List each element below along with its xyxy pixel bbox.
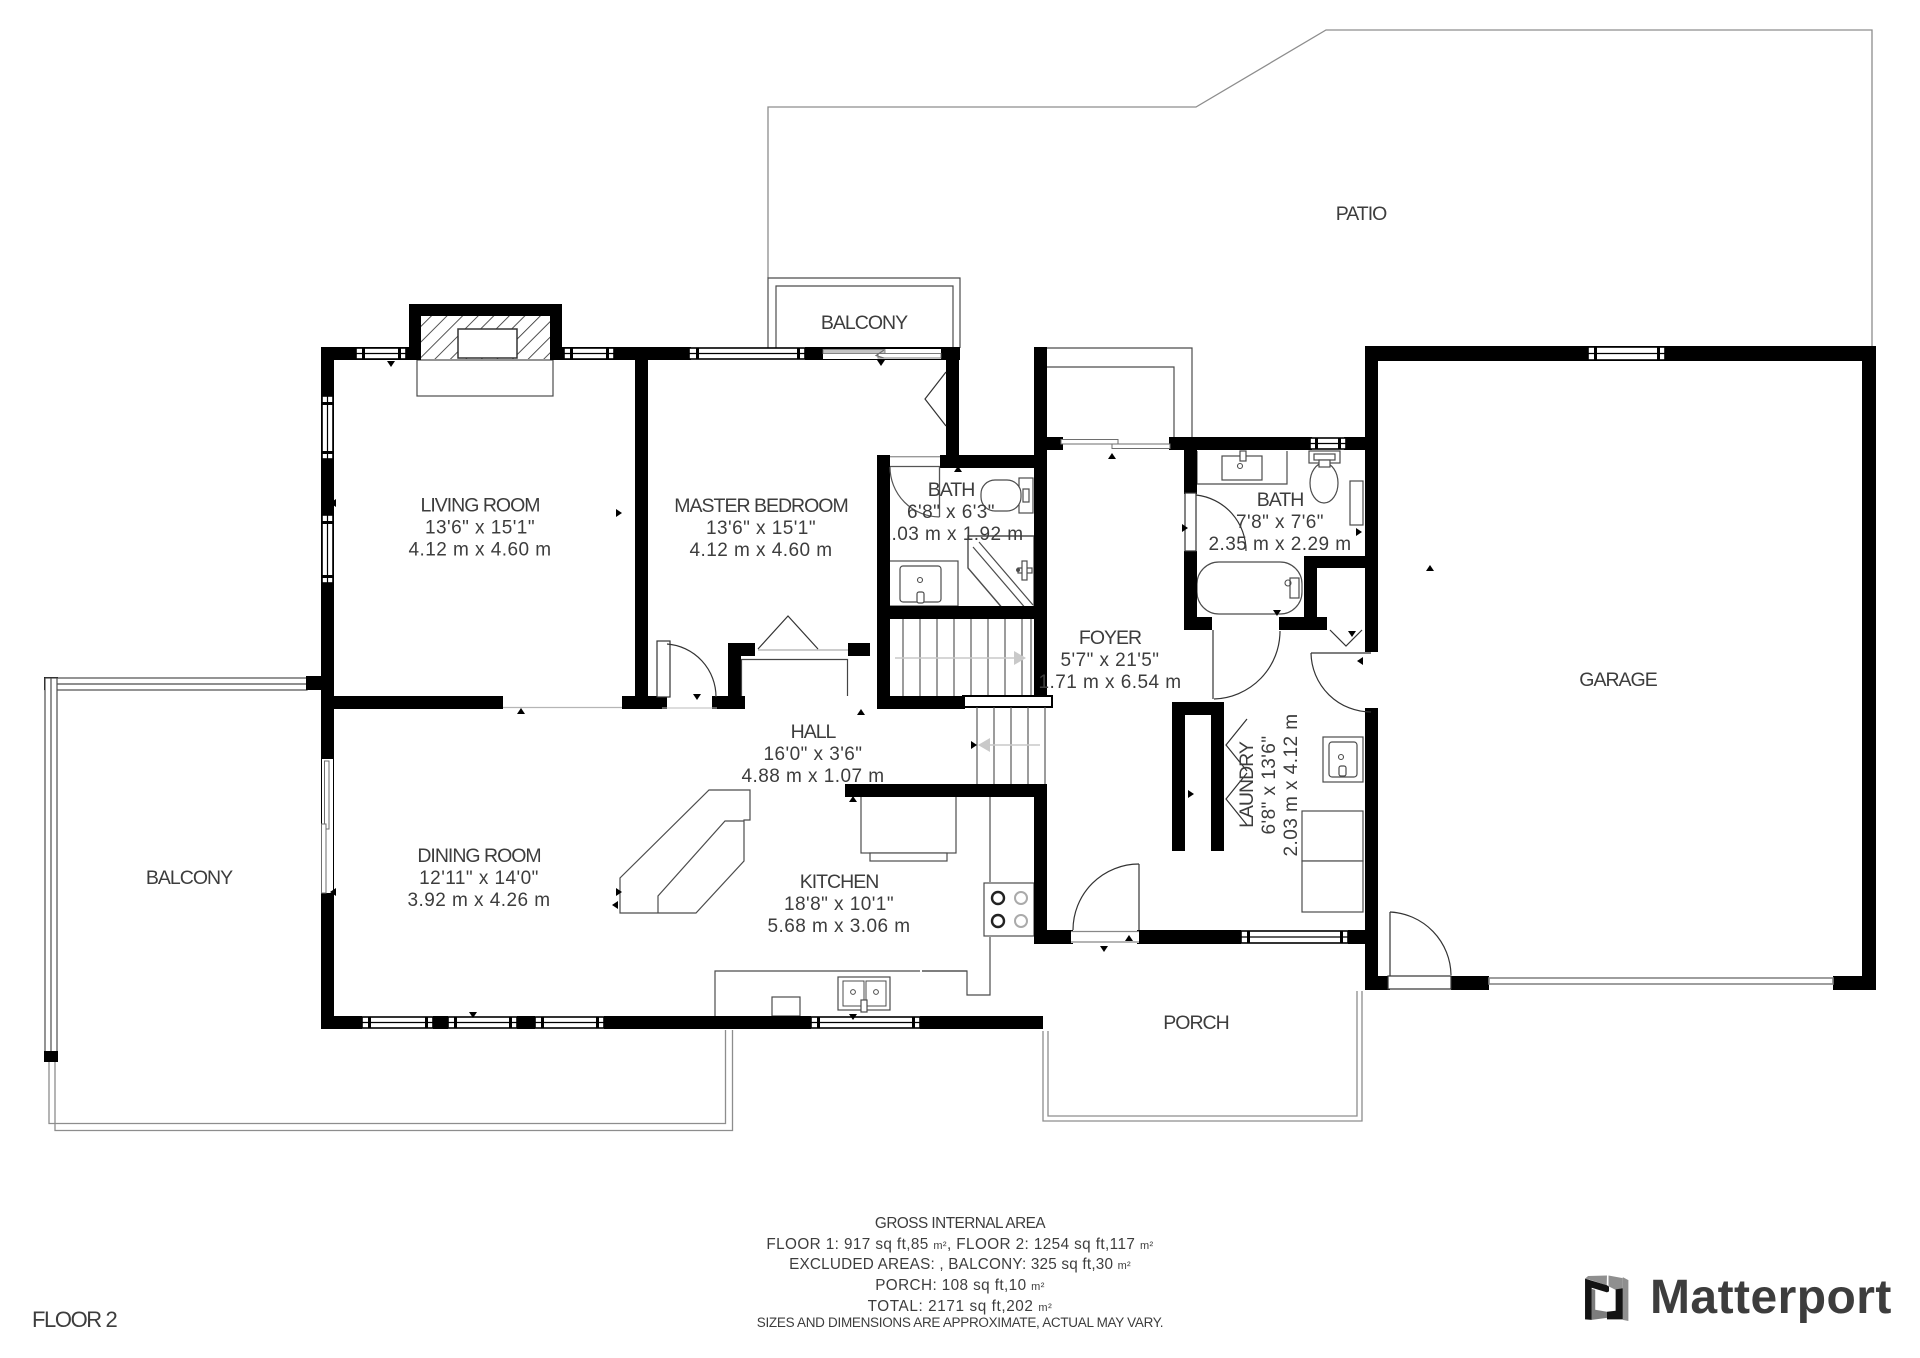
svg-text:SIZES AND DIMENSIONS ARE APPRO: SIZES AND DIMENSIONS ARE APPROXIMATE, AC… (757, 1315, 1163, 1330)
svg-text:2.03 m x 4.12 m: 2.03 m x 4.12 m (1281, 714, 1302, 857)
svg-text:BALCONY: BALCONY (146, 867, 233, 889)
svg-text:LIVING ROOM: LIVING ROOM (420, 495, 539, 517)
svg-text:13'6" x 15'1": 13'6" x 15'1" (425, 518, 535, 539)
svg-text:Matterport: Matterport (1650, 1271, 1892, 1324)
svg-text:5.68 m x 3.06 m: 5.68 m x 3.06 m (768, 916, 911, 937)
svg-text:FLOOR 1: 917 sq ft,85 m², FLOO: FLOOR 1: 917 sq ft,85 m², FLOOR 2: 1254 … (766, 1236, 1153, 1253)
svg-text:DINING ROOM: DINING ROOM (417, 845, 540, 867)
svg-text:6'8" x 6'3": 6'8" x 6'3" (907, 502, 995, 523)
svg-text:BALCONY: BALCONY (821, 312, 908, 334)
svg-text:2.35 m x 2.29 m: 2.35 m x 2.29 m (1209, 534, 1352, 555)
svg-text:5'7" x 21'5": 5'7" x 21'5" (1060, 650, 1159, 671)
svg-text:4.12 m x 4.60 m: 4.12 m x 4.60 m (690, 540, 833, 561)
svg-text:4.88 m x 1.07 m: 4.88 m x 1.07 m (742, 766, 885, 787)
svg-text:BATH: BATH (928, 479, 975, 501)
svg-text:3.92 m x 4.26 m: 3.92 m x 4.26 m (408, 890, 551, 911)
svg-text:BATH: BATH (1257, 489, 1304, 511)
svg-text:4.12 m x 4.60 m: 4.12 m x 4.60 m (409, 540, 552, 561)
svg-text:GARAGE: GARAGE (1579, 669, 1657, 691)
svg-text:7'8" x 7'6": 7'8" x 7'6" (1236, 512, 1324, 533)
svg-text:PORCH: 108 sq ft,10 m²: PORCH: 108 sq ft,10 m² (875, 1277, 1045, 1294)
svg-text:GROSS INTERNAL AREA: GROSS INTERNAL AREA (875, 1215, 1046, 1232)
svg-text:HALL: HALL (791, 721, 837, 743)
svg-text:FLOOR 2: FLOOR 2 (32, 1307, 117, 1332)
svg-text:TOTAL: 2171 sq ft,202 m²: TOTAL: 2171 sq ft,202 m² (868, 1298, 1053, 1315)
svg-text:KITCHEN: KITCHEN (800, 871, 879, 893)
svg-text:16'0" x 3'6": 16'0" x 3'6" (763, 744, 862, 765)
svg-text:6'8" x 13'6": 6'8" x 13'6" (1259, 735, 1280, 834)
svg-text:PATIO: PATIO (1336, 203, 1387, 225)
svg-text:EXCLUDED AREAS: , BALCONY: 325: EXCLUDED AREAS: , BALCONY: 325 sq ft,30 … (789, 1256, 1131, 1273)
svg-text:2.03 m x 1.92 m: 2.03 m x 1.92 m (881, 524, 1024, 545)
svg-text:1.71 m x 6.54 m: 1.71 m x 6.54 m (1039, 672, 1182, 693)
svg-text:12'11" x 14'0": 12'11" x 14'0" (419, 868, 539, 889)
svg-text:LAUNDRY: LAUNDRY (1236, 741, 1258, 828)
svg-text:MASTER BEDROOM: MASTER BEDROOM (674, 495, 847, 517)
svg-text:18'8" x 10'1": 18'8" x 10'1" (784, 894, 894, 915)
svg-text:FOYER: FOYER (1079, 627, 1142, 649)
svg-text:13'6" x 15'1": 13'6" x 15'1" (706, 518, 816, 539)
svg-text:PORCH: PORCH (1163, 1012, 1228, 1034)
